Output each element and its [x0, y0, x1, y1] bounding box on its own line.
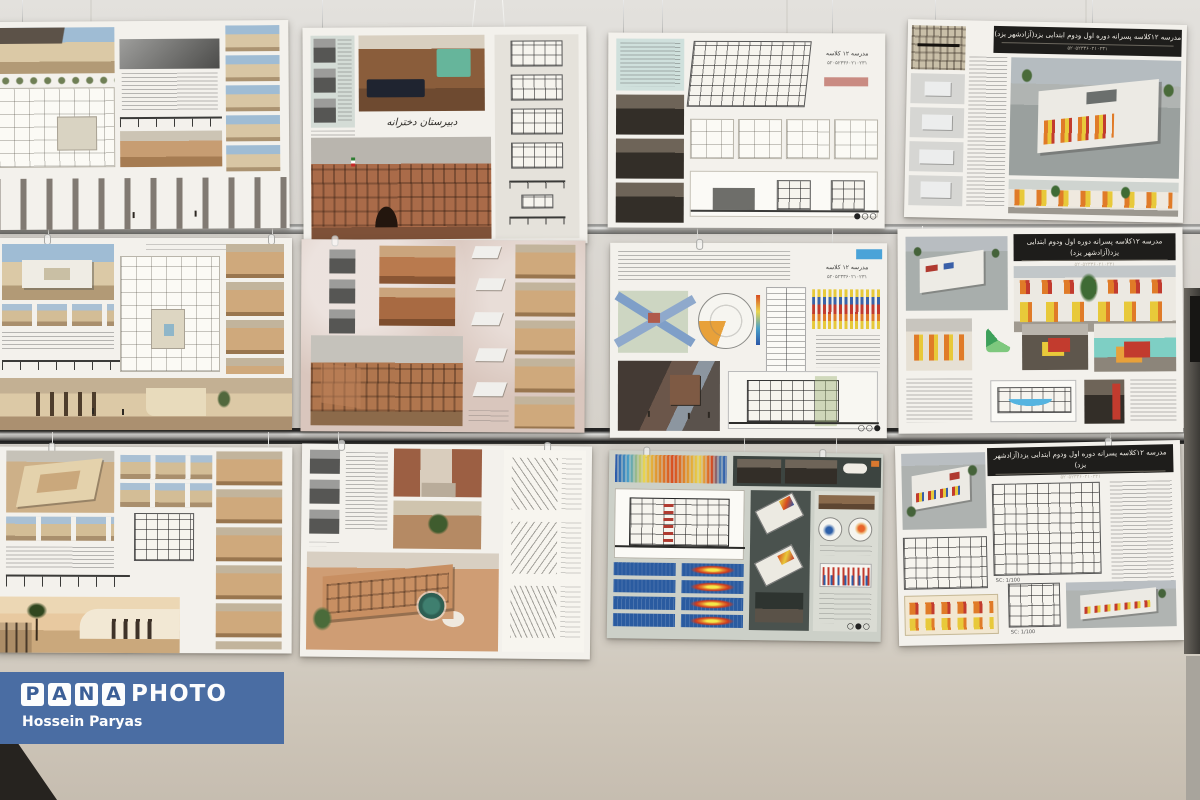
hanging-wire [22, 0, 23, 24]
tree [1076, 268, 1102, 308]
thermal-patch [779, 496, 794, 510]
thermal-strip-blob [682, 563, 744, 577]
brand-letter-box: N [75, 683, 98, 706]
plan-thumb [786, 119, 830, 159]
main-floor-plan [120, 256, 220, 372]
tree [965, 462, 979, 478]
tilted-plan [755, 492, 804, 534]
street-render [618, 361, 720, 431]
night-render [785, 460, 837, 485]
bw-photo-stack [329, 249, 355, 335]
logo-dots: ●○○ [854, 211, 878, 220]
color-scale [756, 295, 760, 345]
interior-render [358, 35, 484, 112]
mass-step [472, 382, 507, 396]
aerial-courtyard-render [6, 451, 114, 513]
ground-line [615, 545, 745, 549]
chart-caption [816, 335, 880, 367]
elevation-thumb [819, 495, 875, 510]
section-block [777, 180, 811, 210]
play-equipment [1124, 341, 1150, 357]
thermal-strip [614, 562, 676, 576]
plan-thumb [738, 119, 782, 159]
thermal-grid [613, 562, 744, 630]
poster-r2c4: مدرسه ۱۲کلاسه پسرانه دوره اول ودوم ابتدا… [897, 227, 1183, 433]
plan-thumb [690, 119, 734, 159]
poster-r1c3: مدرسه ۱۲ کلاسه ۵۲۰۵۲۳۳۶۰۲۱۰۲۳۱ ●○○ [608, 33, 886, 229]
first-floor-plan [903, 536, 988, 590]
section-drawing [120, 116, 222, 127]
thermal-strip [613, 613, 675, 627]
poster-r1c1 [0, 20, 290, 230]
chart-labels [820, 545, 872, 556]
courtyard-block [57, 116, 97, 150]
code-line [309, 542, 339, 547]
brick-school-render [311, 335, 463, 426]
polar-chart-blue [818, 517, 842, 541]
stacked-bar-chart [812, 289, 882, 329]
poster-r3c1 [0, 446, 292, 653]
poster-r3c3: ○●○ [607, 450, 884, 642]
massing-diagram [908, 175, 963, 206]
accent-bar [824, 77, 868, 86]
mass-block [920, 181, 950, 198]
trees [308, 602, 336, 636]
gate-screen [0, 622, 32, 652]
blue-accent [944, 262, 954, 269]
plan-title [146, 244, 226, 250]
road-area [0, 27, 114, 44]
orange-tag [871, 461, 879, 467]
bar-chart [819, 563, 871, 588]
tree [912, 245, 924, 259]
orange-fins [914, 334, 964, 360]
axon-panel [502, 450, 586, 653]
ground-floor-plan [992, 482, 1102, 576]
plan-thumb [834, 119, 878, 159]
building-section [629, 497, 730, 546]
main-render [1009, 57, 1181, 179]
aerial-render [2, 244, 114, 300]
tree [423, 509, 453, 539]
building-section [728, 371, 878, 429]
brand-logo: P A N A PHOTO [21, 681, 227, 707]
sofas [367, 79, 425, 97]
play-equipment [1048, 338, 1070, 352]
night-render [737, 459, 781, 484]
thermal-strip-blob [681, 614, 743, 628]
courtyard-render [393, 500, 481, 549]
roof-court [1086, 89, 1116, 104]
palm-trunk [36, 619, 38, 641]
glass-box [437, 49, 471, 77]
pool [164, 324, 174, 336]
poster-header: مدرسه ۱۲کلاسه پسرانه دوره اول ودوم ابتدا… [1013, 233, 1175, 261]
school-building [1037, 79, 1159, 153]
colored-fins [1044, 113, 1115, 144]
aerial-render [0, 27, 115, 74]
poster-r3c4: مدرسه ۱۲کلاسه پسرانه دوره اول ودوم ابتدا… [895, 440, 1184, 646]
mass-step [475, 348, 507, 361]
green-shaft [815, 376, 837, 426]
site-marker [648, 313, 660, 323]
floor-plan [134, 513, 194, 561]
notes-text [1130, 379, 1176, 423]
watermark-banner: P A N A PHOTO Hossein Paryas [0, 672, 284, 744]
ground-line [691, 210, 879, 213]
poster-r1c4: مدرسه ۱۲کلاسه پسرانه دوره اول ودوم ابتدا… [904, 19, 1187, 223]
poster-header: مدرسه ۱۲کلاسه پسرانه دوره اول ودوم ابتدا… [993, 26, 1182, 57]
aerial-render-2 [1066, 580, 1177, 628]
playground-render [1022, 324, 1088, 370]
annotation-text [337, 39, 351, 123]
school-building [1080, 587, 1156, 619]
column-slots [112, 619, 156, 639]
massing-diagram [910, 107, 965, 138]
plan-thumb [511, 74, 563, 100]
exhibition-photo: دبیرستان دخترانه مدرسه ۱۲ کلاسه ۵۲۰۵۲۳۳۶… [0, 0, 1200, 800]
person-figure [688, 413, 690, 419]
school-building [912, 466, 971, 510]
thermal-strip-blob [681, 580, 743, 594]
door-photos [1084, 380, 1124, 424]
fin-wall [321, 363, 361, 409]
colorful-windows [1084, 600, 1150, 614]
person-figure [92, 408, 94, 414]
tree [904, 504, 918, 520]
building-mass [713, 188, 755, 210]
title-text: مدرسه ۱۲ کلاسه [826, 264, 868, 271]
calligraphy-title: دبیرستان دخترانه [359, 117, 485, 134]
elevation-drawing [690, 171, 878, 218]
iran-flag [351, 157, 355, 166]
header-code: ۵۲۰۵۲۳۳۶۰۲۱۰۲۳۱ [1001, 42, 1173, 55]
notes-text [906, 378, 972, 422]
tree [1019, 65, 1035, 85]
thermal-strip-blob [681, 597, 743, 611]
title-code: ۵۲۰۵۲۳۳۶۰۲۱۰۲۳۱ [816, 273, 878, 281]
wall-edge-lower [1186, 656, 1200, 800]
render-stack [225, 25, 280, 173]
heatmap-strip [615, 454, 727, 484]
render-stack [226, 244, 284, 374]
colorful-windows [916, 485, 964, 503]
poster-title: مدرسه ۱۲ کلاسه ۵۲۰۵۲۳۳۶۰۲۱۰۲۳۱ [816, 49, 878, 71]
thermal-strip [613, 579, 675, 593]
section-block [831, 180, 865, 210]
colorful-windows [1014, 189, 1172, 208]
person-figure [195, 211, 197, 217]
render-thumb-row [6, 517, 114, 541]
bw-photo-stack [313, 39, 335, 127]
title-code: ۵۲۰۵۲۳۳۶۰۲۱۰۲۳۱ [816, 59, 878, 67]
lower-row [910, 617, 994, 631]
photo-strip [119, 38, 219, 69]
render-stack [216, 451, 283, 649]
diagram-green [980, 324, 1016, 358]
red-wall [1112, 384, 1120, 420]
night-building-render [755, 592, 803, 623]
aerial-brick-render [306, 552, 499, 652]
mass-step [475, 278, 505, 290]
brand-suffix: PHOTO [131, 681, 227, 707]
evening-render [0, 177, 290, 230]
title-badge [843, 463, 867, 473]
upper-row [909, 601, 993, 615]
ground-line [729, 422, 879, 424]
dark-edge-block [1190, 296, 1200, 362]
plan-thumb [521, 194, 553, 208]
mass-block [922, 114, 952, 130]
elevation-render [1014, 265, 1176, 332]
person-figure [648, 411, 650, 417]
scale-label: SC: 1/100 [1011, 629, 1035, 636]
person-figure [708, 412, 710, 418]
site-plan [0, 87, 115, 168]
dark-plan-panel [749, 490, 811, 631]
poster-r2c3: مدرسه ۱۲ کلاسه ۵۲۰۵۲۳۳۶۰۲۱۰۲۳۱ ○○● [610, 243, 887, 438]
roof-plan [1008, 583, 1061, 628]
top-paragraph [618, 251, 790, 281]
interior-render [616, 183, 684, 223]
plan-thumb [511, 108, 563, 134]
massing-diagram [909, 141, 964, 172]
section-thumb [509, 216, 565, 224]
walled-school [16, 458, 103, 507]
tree-row [0, 76, 115, 86]
poster-r2c2 [300, 239, 585, 432]
brand-letter-box: P [21, 683, 44, 706]
section-thumb [509, 180, 565, 188]
section-drawing [2, 360, 122, 370]
exterior-render [0, 378, 292, 430]
header-title: مدرسه ۱۲کلاسه پسرانه دوره اول ودوم ابتدا… [994, 30, 1181, 42]
header-title: مدرسه ۱۲کلاسه پسرانه دوره اول ودوم ابتدا… [994, 448, 1167, 468]
interior-render [616, 95, 684, 135]
poster-title: مدرسه ۱۲ کلاسه ۵۲۰۵۲۳۳۶۰۲۱۰۲۳۱ [816, 263, 878, 283]
tilted-plan [754, 544, 803, 586]
exploded-axon [510, 586, 557, 638]
road-line [918, 43, 960, 47]
stair-zigzag [663, 502, 674, 542]
alley-render [394, 448, 482, 497]
sunpath-diagram [698, 293, 754, 349]
blue-bars [823, 575, 871, 586]
exploded-axon [511, 458, 558, 510]
facade-grid [311, 164, 491, 227]
photographer-credit: Hossein Paryas [22, 714, 142, 730]
airflow-arrow [1005, 399, 1055, 407]
glass-cylinder-tree [418, 593, 444, 619]
tree [990, 246, 1002, 260]
title-text: مدرسه ۱۲ کلاسه [826, 50, 868, 57]
brand-letter-box: A [48, 683, 71, 706]
courtyard [151, 309, 185, 349]
exploded-axon [511, 522, 558, 574]
scale-label: SC: 1/100 [996, 577, 1020, 584]
satellite-map [911, 25, 966, 70]
interior-render [616, 139, 684, 179]
text-paragraph [2, 332, 114, 352]
description-text [966, 56, 1007, 207]
code-line [311, 130, 355, 135]
white-volume [146, 388, 206, 416]
courtyard-building [22, 260, 92, 288]
poster-header: مدرسه ۱۲کلاسه پسرانه دوره اول ودوم ابتدا… [987, 444, 1174, 476]
binder-clip [696, 239, 703, 250]
brand-letter-box: A [102, 683, 125, 706]
header-title: مدرسه ۱۲کلاسه پسرانه دوره اول ودوم ابتدا… [1027, 237, 1163, 256]
notes [819, 593, 871, 624]
mass-block [919, 149, 953, 164]
plan-thumb [511, 142, 563, 168]
person-figure [122, 409, 124, 415]
text-paragraph [122, 72, 218, 111]
spiral-stair [442, 611, 464, 627]
photo-sidebar [310, 35, 354, 127]
tree [1118, 184, 1132, 202]
tree [1048, 182, 1062, 200]
render-thumb-row [2, 304, 114, 326]
mass-step [471, 246, 501, 258]
fin-render [906, 318, 972, 370]
thermal-patch [777, 550, 794, 565]
green-shape [986, 328, 1010, 352]
aerial-render [906, 236, 1008, 311]
person-figure [133, 212, 135, 218]
tree [1160, 80, 1176, 100]
dusk-render [0, 596, 180, 653]
poster-r1c2: دبیرستان دخترانه [302, 26, 587, 244]
axon-notes [561, 458, 582, 510]
massing-sequence [469, 244, 510, 406]
text-paragraph [6, 547, 114, 569]
red-sign [950, 472, 960, 481]
analysis-panel [813, 491, 879, 632]
hanging-wire [623, 0, 624, 34]
mass-step [471, 312, 503, 325]
school-building [920, 250, 984, 293]
drawings-panel [494, 34, 579, 238]
polar-chart-orange [848, 517, 872, 541]
legend-list [1110, 480, 1174, 593]
poster-r3c2 [300, 443, 592, 659]
render-stack [515, 244, 576, 428]
city-map [618, 291, 688, 353]
tree [1156, 586, 1168, 600]
accent-tab [856, 249, 882, 259]
render-thumb-row [120, 455, 212, 479]
text-paragraph [620, 43, 680, 87]
thermal-strip [613, 596, 675, 610]
logo-dots: ○○● [858, 423, 882, 432]
axon-notes [561, 522, 582, 574]
inner-court [44, 268, 70, 280]
palm-tree [214, 386, 234, 412]
inner-court [36, 471, 80, 493]
brick-building [670, 375, 700, 405]
column-slots [36, 392, 106, 416]
render-thumb-row [120, 483, 212, 507]
playground-render-teal [1094, 323, 1176, 371]
water-floor [422, 483, 456, 497]
section-diagram [990, 380, 1076, 422]
aerial-render [901, 452, 987, 530]
axon-notes [560, 586, 581, 638]
interior-render [379, 246, 455, 284]
arch-entry [373, 203, 399, 227]
massing-diagram [910, 73, 965, 104]
text-paragraph [345, 452, 388, 530]
elevation-strip [1008, 179, 1179, 217]
courtyard-render [120, 130, 222, 167]
colorful-elevation [904, 594, 999, 636]
intro-text-block [616, 39, 684, 91]
logo-dots: ○●○ [847, 621, 871, 630]
poster-r2c1 [0, 238, 292, 430]
red-accent [926, 265, 938, 273]
section-panel [614, 488, 745, 560]
hanging-wire [662, 0, 663, 34]
section-strip [6, 575, 130, 587]
brick-school-render [311, 137, 492, 240]
hanging-wire [832, 0, 833, 36]
library-render [379, 288, 455, 326]
plan-thumb [511, 40, 563, 66]
notes-text [469, 410, 509, 424]
mass-block [925, 81, 951, 96]
hanging-wire [322, 0, 323, 30]
site-plan [687, 41, 812, 107]
dark-render-band [733, 456, 881, 488]
bw-photo-stack [309, 450, 340, 538]
